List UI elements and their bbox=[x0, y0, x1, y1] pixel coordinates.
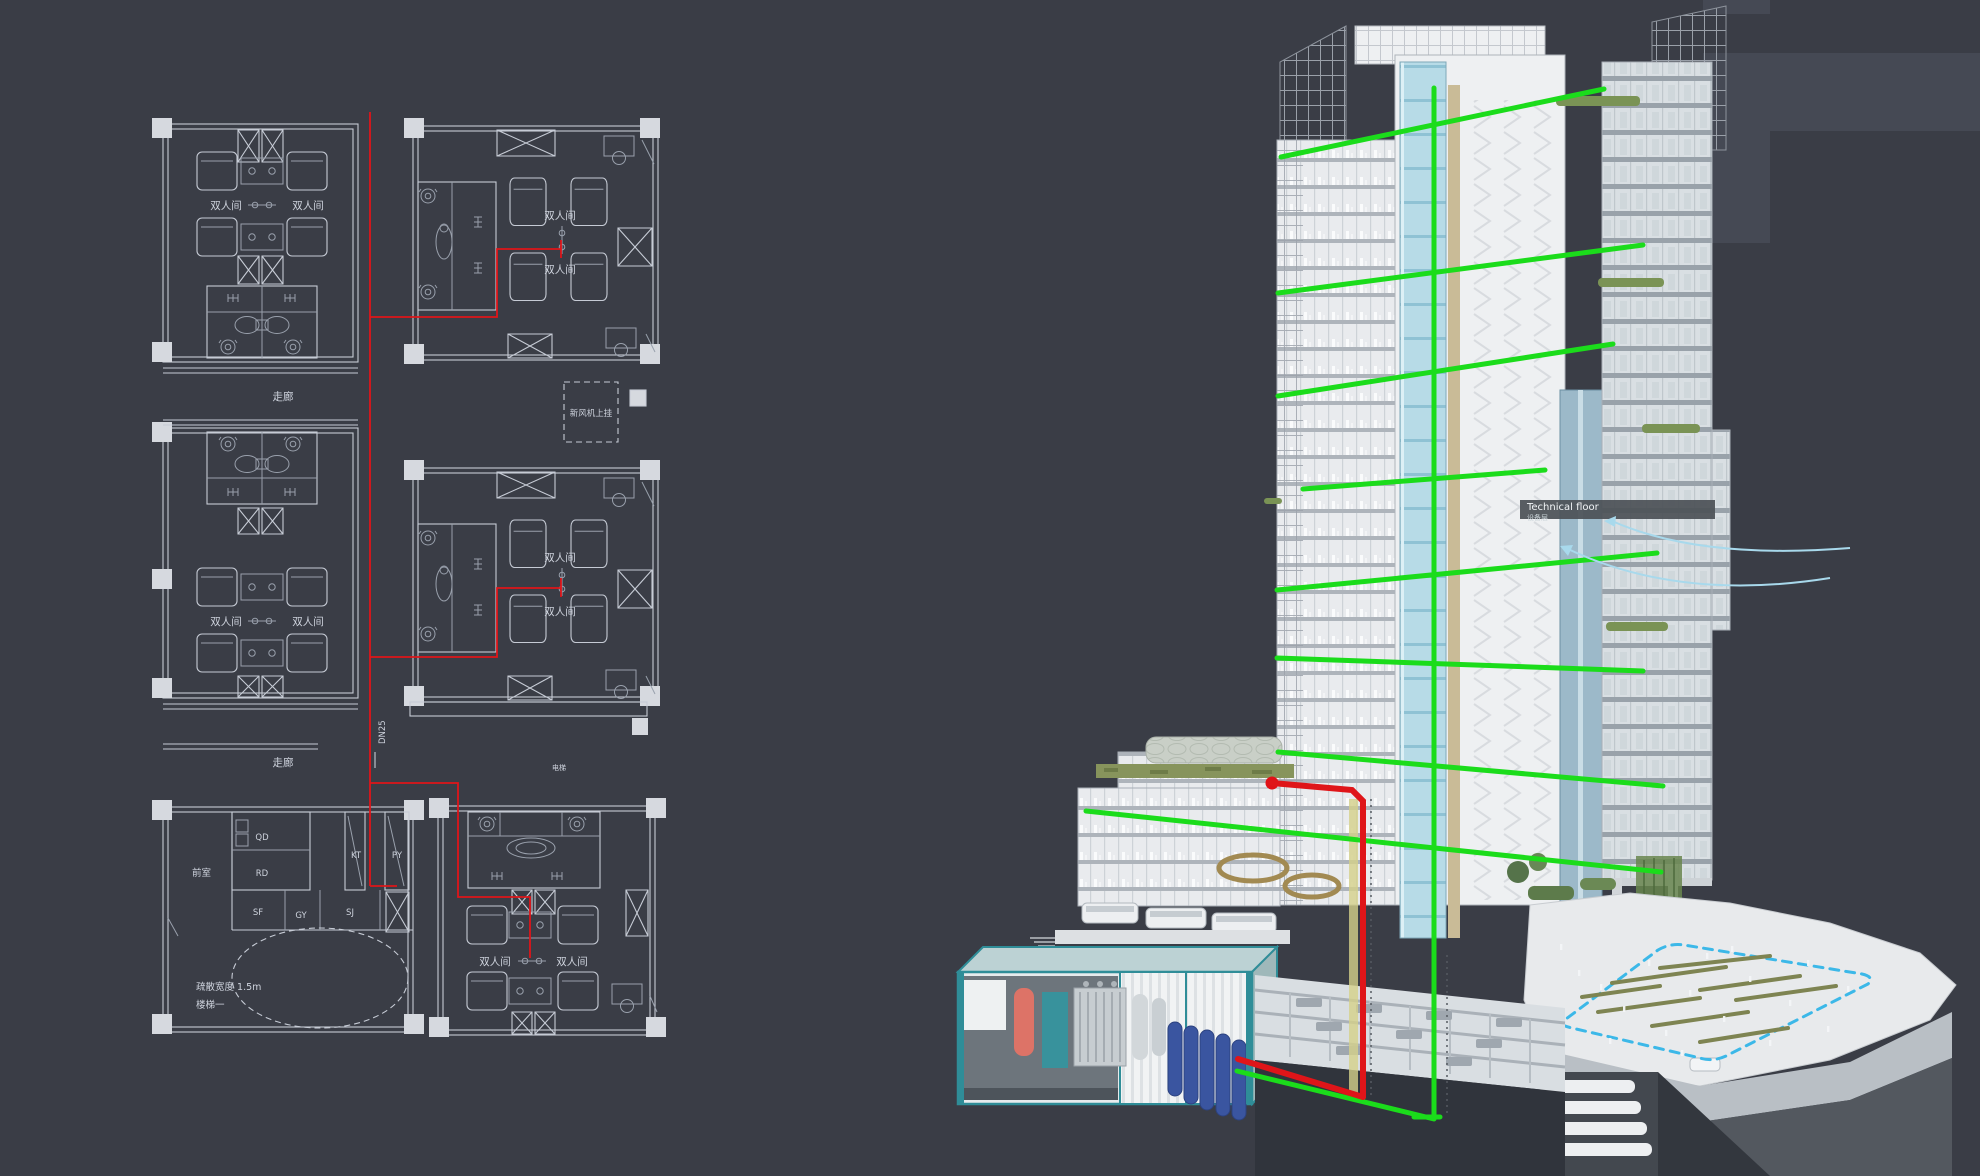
room-label-rd: RD bbox=[256, 869, 269, 879]
pipe-size-label: DN25 bbox=[378, 720, 388, 744]
room-label-double: 双人间 bbox=[292, 199, 324, 212]
room-label-double: 双人间 bbox=[544, 605, 576, 618]
glass-shaft-highlight bbox=[1578, 390, 1583, 958]
glass-shaft-left bbox=[1400, 62, 1446, 938]
room-label-front: 前室 bbox=[192, 867, 211, 879]
fresh-air-label: 新风机上挂 bbox=[570, 408, 613, 419]
tower-right-wing bbox=[1602, 62, 1730, 880]
room-label-double: 双人间 bbox=[292, 615, 324, 628]
vessel bbox=[1152, 998, 1166, 1056]
bim-presentation-canvas: Technical floor 设备层 双人间 双人间 bbox=[0, 0, 1980, 1176]
room-label-sj: SJ bbox=[346, 908, 354, 918]
room-label-double: 双人间 bbox=[556, 955, 588, 968]
room-label-double: 双人间 bbox=[479, 955, 511, 968]
elevator-label: 电梯 bbox=[552, 763, 566, 772]
room-label-double: 双人间 bbox=[544, 209, 576, 222]
container-plant-room bbox=[958, 947, 1277, 1120]
vessel bbox=[1132, 994, 1148, 1060]
scene-svg: Technical floor 设备层 双人间 双人间 bbox=[0, 0, 1980, 1176]
technical-floor-label: Technical floor bbox=[1526, 502, 1600, 513]
room-label-sf: SF bbox=[253, 908, 263, 918]
evac-width-note: 疏散宽度 1.5m bbox=[196, 981, 261, 993]
yellow-shaft bbox=[1349, 799, 1358, 1097]
technical-floor-label-cn: 设备层 bbox=[1527, 513, 1548, 522]
red-tank bbox=[1014, 988, 1034, 1056]
room-label-gy: GY bbox=[295, 911, 307, 921]
room-label-double: 双人间 bbox=[210, 615, 242, 628]
room-label-py: PY bbox=[392, 851, 403, 861]
room-label-kt: KT bbox=[351, 851, 362, 861]
corridor-label: 走廊 bbox=[273, 390, 294, 403]
stair-note: 楼梯一 bbox=[196, 999, 225, 1011]
transformer bbox=[1074, 981, 1126, 1066]
podium-ground bbox=[1055, 930, 1290, 944]
teal-cabinet bbox=[1042, 992, 1068, 1068]
beige-shaft bbox=[1448, 85, 1460, 938]
room-label-double: 双人间 bbox=[544, 551, 576, 564]
room-label-double: 双人间 bbox=[544, 263, 576, 276]
room-label-double: 双人间 bbox=[210, 199, 242, 212]
corridor-label: 走廊 bbox=[273, 756, 294, 769]
room-label-qd: QD bbox=[255, 833, 269, 843]
